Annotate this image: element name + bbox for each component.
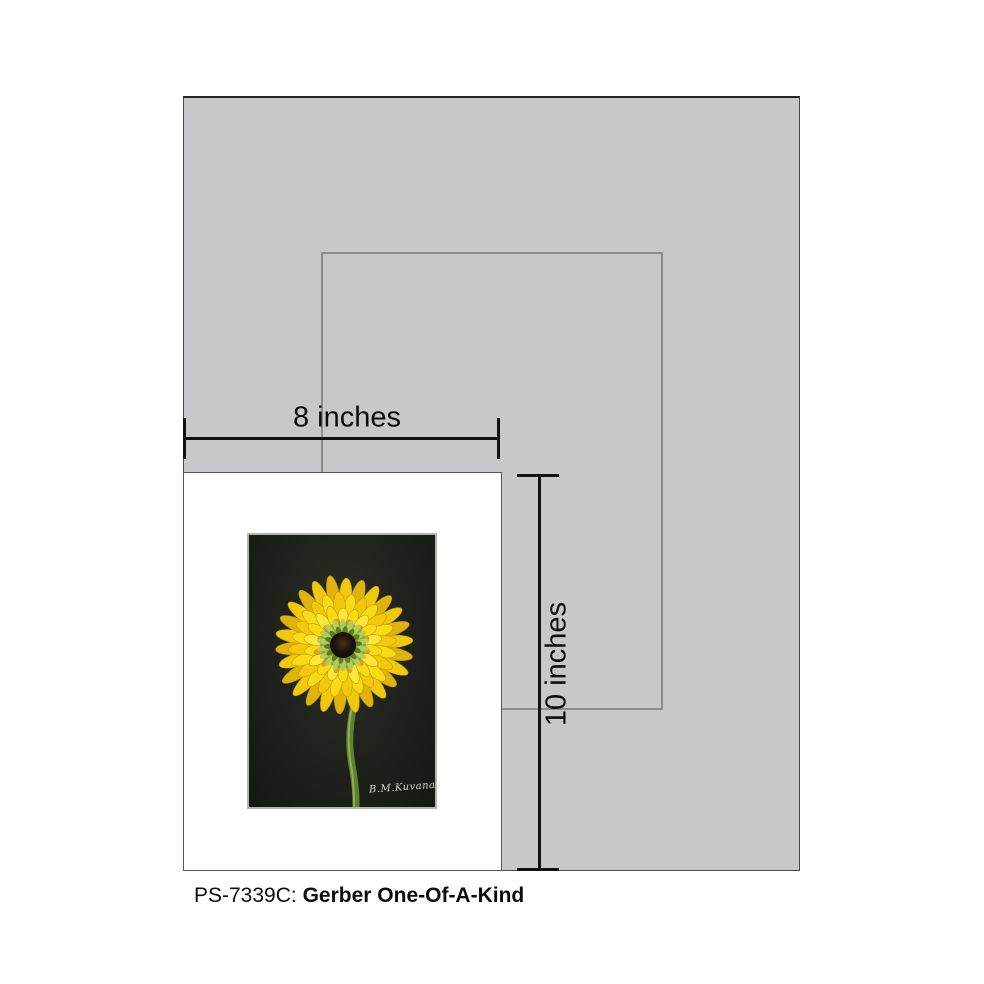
width-dimension-label: 8 inches [293,402,401,435]
height-dimension-tick-top [517,474,559,477]
artwork-image: B.M.Kuvanas [247,533,437,809]
width-dimension-tick-left [183,418,186,459]
product-sku: PS-7339C: [194,884,297,907]
product-title: Gerber One-Of-A-Kind [303,884,525,907]
height-dimension-tick-bottom [517,868,559,871]
product-dimension-diagram: B.M.Kuvanas 8 inches 10 inches PS-7339C:… [0,0,984,984]
product-caption: PS-7339C: Gerber One-Of-A-Kind [194,884,524,908]
width-dimension-line [184,437,500,440]
width-dimension-tick-right [497,418,500,459]
height-dimension-label: 10 inches [541,602,574,726]
gerbera-flower-illustration [249,535,435,807]
